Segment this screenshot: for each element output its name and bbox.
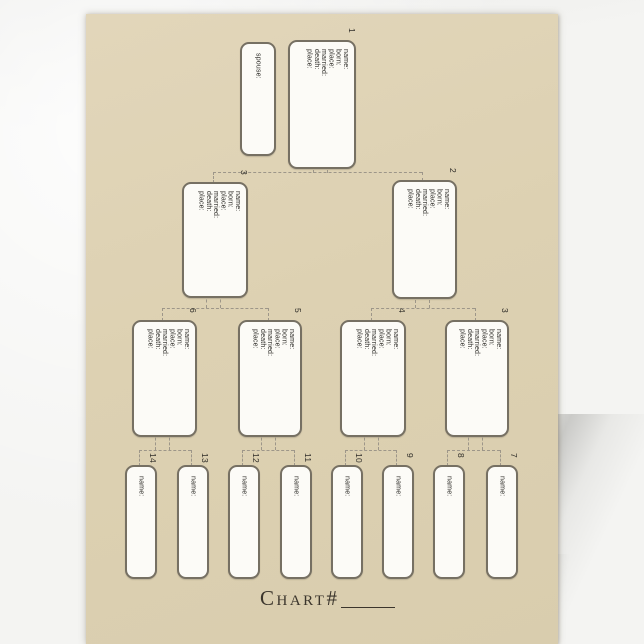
field-label: place: bbox=[480, 329, 487, 431]
field-label: name: bbox=[342, 49, 349, 163]
field-label: married: bbox=[421, 189, 428, 293]
field-label: name: bbox=[443, 189, 450, 293]
field-label: born: bbox=[280, 329, 287, 431]
field-label: place: bbox=[273, 329, 280, 431]
field-label: name: bbox=[394, 476, 401, 573]
name-box-12: 12 name: bbox=[228, 465, 260, 579]
connector-line bbox=[139, 450, 191, 451]
box-number: 5 bbox=[293, 308, 303, 313]
box-number: 3 bbox=[239, 170, 249, 175]
field-label: death: bbox=[363, 329, 370, 431]
name-box-11: 11 name: bbox=[280, 465, 312, 579]
box-number: 4 bbox=[397, 308, 407, 313]
box-fields: name:born:place:married:death:place: bbox=[251, 329, 295, 431]
connector-line bbox=[242, 450, 243, 466]
box-fields: name: bbox=[498, 476, 505, 573]
connector-line bbox=[294, 450, 295, 466]
field-label: place: bbox=[377, 329, 384, 431]
box-fields: name: bbox=[189, 476, 196, 573]
field-label: name: bbox=[288, 329, 295, 431]
name-box-13: 13 name: bbox=[177, 465, 209, 579]
field-label: born: bbox=[384, 329, 391, 431]
field-label: place: bbox=[168, 329, 175, 431]
box-number: 14 bbox=[148, 453, 158, 463]
box-fields: name: bbox=[445, 476, 452, 573]
box-fields: name:born:place:married:death:place: bbox=[458, 329, 502, 431]
connector-line bbox=[447, 450, 500, 451]
connector-line bbox=[345, 450, 346, 466]
connector-line bbox=[139, 450, 140, 466]
connector-line bbox=[396, 450, 397, 466]
box-fields: name: bbox=[292, 476, 299, 573]
field-label: name: bbox=[292, 476, 299, 573]
box-fields: name:born:place:married:death:place: bbox=[355, 329, 399, 431]
field-label: place: bbox=[355, 329, 362, 431]
field-label: born: bbox=[334, 49, 341, 163]
box-fields: name:born:place:married:death:place: bbox=[406, 189, 450, 293]
box-number: 6 bbox=[188, 308, 198, 313]
name-box-10: 10 name: bbox=[331, 465, 363, 579]
field-label: name: bbox=[495, 329, 502, 431]
field-label: place: bbox=[458, 329, 465, 431]
name-box-8: 8 name: bbox=[433, 465, 465, 579]
box-number: 1 bbox=[347, 28, 357, 33]
box-number: 11 bbox=[303, 453, 313, 462]
connector-line bbox=[162, 308, 268, 309]
field-label: name: bbox=[183, 329, 190, 431]
box-number: 9 bbox=[405, 453, 415, 458]
field-label: name: bbox=[189, 476, 196, 573]
field-label: death: bbox=[466, 329, 473, 431]
box-fields: name:born:place:married:death:place: bbox=[305, 49, 349, 163]
field-label: name: bbox=[137, 476, 144, 573]
connector-line bbox=[242, 450, 294, 451]
name-box-14: 14 name: bbox=[125, 465, 157, 579]
field-label: born: bbox=[435, 189, 442, 293]
field-label: place: bbox=[197, 191, 204, 292]
field-label: name: bbox=[445, 476, 452, 573]
box-number: 7 bbox=[509, 453, 519, 458]
field-label: death: bbox=[205, 191, 212, 292]
field-label: place: bbox=[219, 191, 226, 292]
person-box-5: 5 name:born:place:married:death:place: bbox=[238, 320, 302, 437]
chart-number-blank-line bbox=[341, 607, 395, 608]
field-label: place: bbox=[146, 329, 153, 431]
field-label: death: bbox=[154, 329, 161, 431]
box-fields: name:born:place:married:death:place: bbox=[197, 191, 241, 292]
box-fields: name: bbox=[343, 476, 350, 573]
field-label: place: bbox=[428, 189, 435, 293]
connector-line bbox=[191, 450, 192, 466]
field-label: place: bbox=[251, 329, 258, 431]
person-box-3: 3 name:born:place:married:death:place: bbox=[182, 182, 248, 298]
box-fields: name: bbox=[394, 476, 401, 573]
field-label: married: bbox=[266, 329, 273, 431]
spouse-box: spouse: bbox=[240, 42, 276, 156]
box-number: 12 bbox=[251, 453, 261, 463]
field-label: place: bbox=[406, 189, 413, 293]
field-label: born: bbox=[226, 191, 233, 292]
box-number: 8 bbox=[456, 453, 466, 458]
chart-paper: spouse: 1 name:born:place:married:death:… bbox=[86, 14, 558, 644]
chart-number-footer: Chart# bbox=[260, 586, 395, 611]
field-label: born: bbox=[487, 329, 494, 431]
field-label: name: bbox=[240, 476, 247, 573]
field-label: married: bbox=[212, 191, 219, 292]
field-label: name: bbox=[498, 476, 505, 573]
person-box-2: 2 name:born:place:married:death:place: bbox=[392, 180, 457, 299]
connector-line bbox=[371, 308, 475, 309]
field-label: death: bbox=[414, 189, 421, 293]
connector-line bbox=[345, 450, 396, 451]
connector-line bbox=[447, 450, 448, 466]
chart-number-label: Chart# bbox=[260, 586, 339, 611]
field-label: death: bbox=[313, 49, 320, 163]
field-label: name: bbox=[234, 191, 241, 292]
person-box-6: 6 name:born:place:married:death:place: bbox=[132, 320, 197, 437]
field-label: born: bbox=[175, 329, 182, 431]
box-fields: spouse: bbox=[254, 53, 261, 150]
field-label: name: bbox=[392, 329, 399, 431]
box-fields: name: bbox=[240, 476, 247, 573]
field-label: married: bbox=[370, 329, 377, 431]
box-number: 10 bbox=[354, 453, 364, 463]
field-label: spouse: bbox=[254, 53, 261, 150]
box-fields: name: bbox=[137, 476, 144, 573]
person-box-4: 4 name:born:place:married:death:place: bbox=[340, 320, 406, 437]
field-label: name: bbox=[343, 476, 350, 573]
field-label: married: bbox=[473, 329, 480, 431]
field-label: place: bbox=[305, 49, 312, 163]
name-box-7: 7 name: bbox=[486, 465, 518, 579]
field-label: married: bbox=[161, 329, 168, 431]
name-box-9: 9 name: bbox=[382, 465, 414, 579]
field-label: place: bbox=[327, 49, 334, 163]
field-label: married: bbox=[320, 49, 327, 163]
box-number: 13 bbox=[200, 453, 210, 463]
box-number: 2 bbox=[448, 168, 458, 173]
box-fields: name:born:place:married:death:place: bbox=[146, 329, 190, 431]
box-number: 3 bbox=[500, 308, 510, 313]
person-box-3-right: 3 name:born:place:married:death:place: bbox=[445, 320, 509, 437]
field-label: death: bbox=[259, 329, 266, 431]
person-box-1: 1 name:born:place:married:death:place: bbox=[288, 40, 356, 169]
connector-line bbox=[500, 450, 501, 466]
